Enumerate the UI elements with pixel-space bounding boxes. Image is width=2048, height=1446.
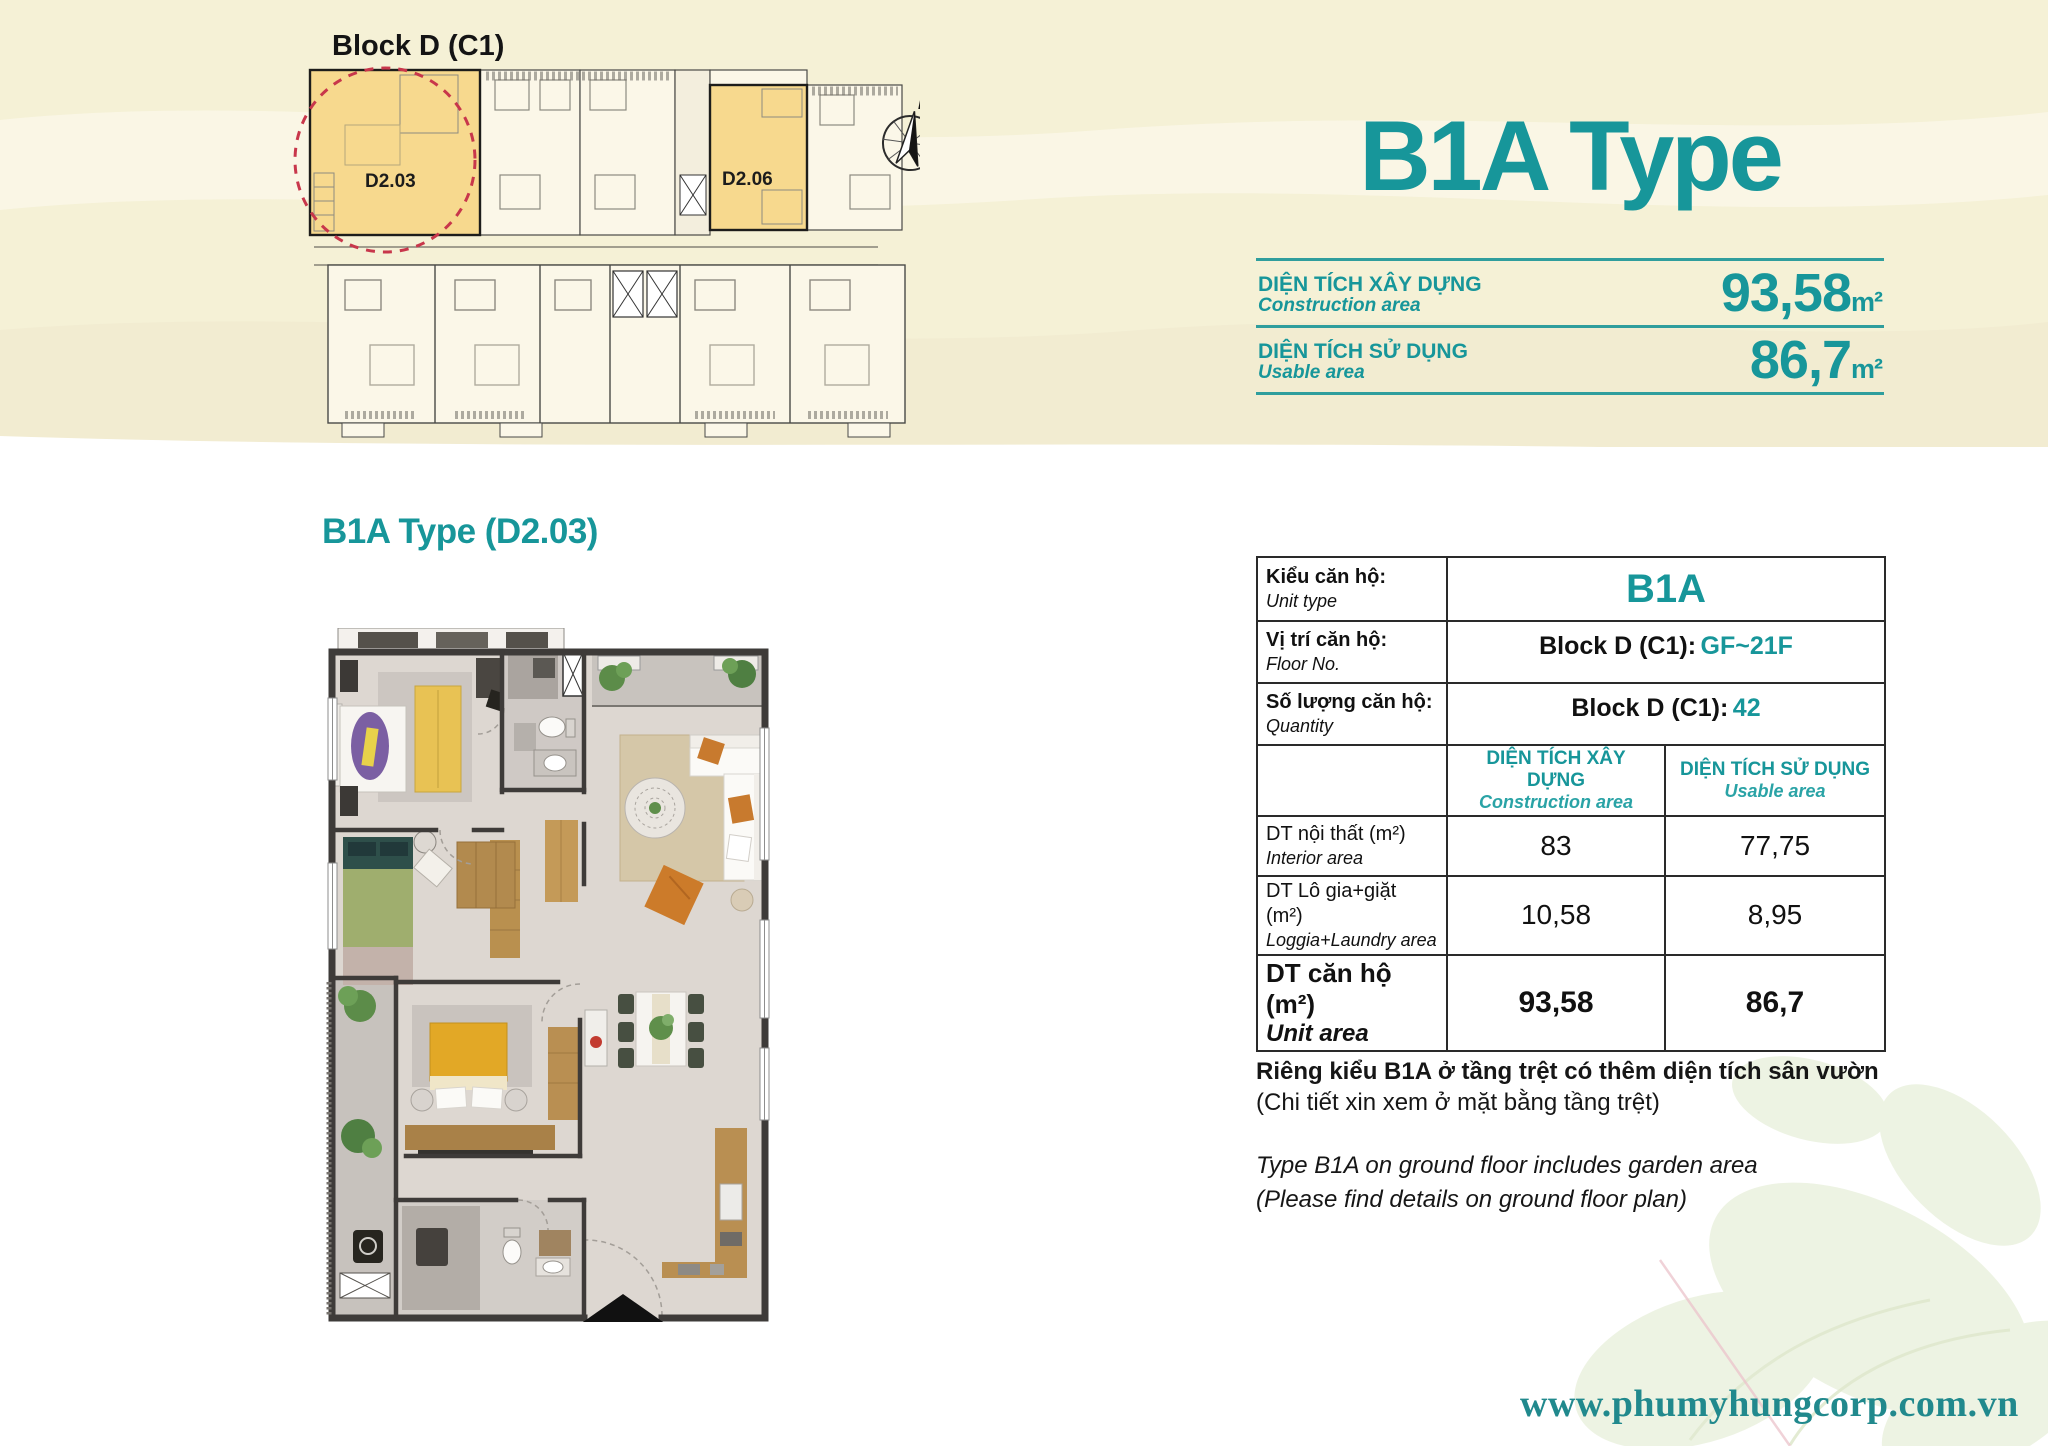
floor-no-value-range: GF~21F (1701, 632, 1793, 660)
area-summary: DIỆN TÍCH XÂY DỰNG Construction area 93,… (1256, 258, 1884, 395)
balcony-top-left (338, 628, 564, 652)
col-header-usable-vi: DIỆN TÍCH SỬ DỤNG (1674, 759, 1876, 781)
page-title: B1A Type (1256, 106, 1884, 205)
quantity-label-vi: Số lượng căn hộ: (1266, 690, 1438, 715)
notes-block: Riêng kiểu B1A ở tầng trệt có thêm diện … (1256, 1056, 1896, 1215)
construction-area-label-vi: DIỆN TÍCH XÂY DỰNG (1258, 274, 1482, 296)
usable-area-row: DIỆN TÍCH SỬ DỤNG Usable area 86,7m² (1256, 325, 1884, 392)
floor-no-label-en: Floor No. (1266, 653, 1438, 676)
quantity-value-count: 42 (1733, 694, 1761, 722)
unit-area-label-vi: DT căn hộ (m²) (1266, 958, 1438, 1020)
note-vi-line2: (Chi tiết xin xem ở mặt bằng tầng trệt) (1256, 1087, 1896, 1118)
quantity-value-block: Block D (C1): (1571, 694, 1728, 722)
loggia-area-label-vi: DT Lô gia+giặt (m²) (1266, 879, 1438, 929)
usable-area-label-vi: DIỆN TÍCH SỬ DỤNG (1258, 341, 1468, 363)
interior-area-label-en: Interior area (1266, 847, 1438, 870)
loggia-area-label-en: Loggia+Laundry area (1266, 929, 1438, 952)
unit-area-usable: 86,7 (1665, 955, 1885, 1051)
table-row: DT căn hộ (m²) Unit area 93,58 86,7 (1257, 955, 1885, 1051)
note-en-line2: (Please find details on ground floor pla… (1256, 1184, 1896, 1215)
interior-area-construction: 83 (1447, 816, 1665, 876)
construction-area-label-en: Construction area (1258, 296, 1482, 316)
construction-area-value: 93,58m² (1721, 262, 1882, 324)
unit-type-label-en: Unit type (1266, 590, 1438, 613)
unit-info-table: Kiểu căn hộ: Unit type B1A Vị trí căn hộ… (1256, 556, 1886, 1052)
apartment-floor-plan (318, 628, 778, 1334)
usable-area-value: 86,7m² (1750, 329, 1882, 391)
note-vi-line1: Riêng kiểu B1A ở tầng trệt có thêm diện … (1256, 1056, 1896, 1087)
interior-area-label-vi: DT nội thất (m²) (1266, 822, 1438, 847)
unit-label-d206: D2.06 (722, 169, 773, 190)
quantity-label-en: Quantity (1266, 715, 1438, 738)
unit-area-construction: 93,58 (1447, 955, 1665, 1051)
compass-north-label: N (918, 96, 920, 113)
table-header-row: DIỆN TÍCH XÂY DỰNG Construction area DIỆ… (1257, 745, 1885, 816)
unit-label-d203: D2.03 (365, 171, 416, 192)
construction-area-row: DIỆN TÍCH XÂY DỰNG Construction area 93,… (1256, 258, 1884, 325)
table-row: Vị trí căn hộ: Floor No. Block D (C1): G… (1257, 621, 1885, 683)
loggia-area-usable: 8,95 (1665, 876, 1885, 955)
website-link[interactable]: www.phumyhungcorp.com.vn (1520, 1382, 1940, 1426)
table-row: Kiểu căn hộ: Unit type B1A (1257, 557, 1885, 621)
unit-d206-shape (710, 85, 807, 230)
bathroom-2 (398, 1200, 582, 1318)
interior-area-usable: 77,75 (1665, 816, 1885, 876)
floor-no-label-vi: Vị trí căn hộ: (1266, 628, 1438, 653)
table-row: Số lượng căn hộ: Quantity Block D (C1): … (1257, 683, 1885, 745)
floor-no-value-block: Block D (C1): (1539, 632, 1696, 660)
note-en-line1: Type B1A on ground floor includes garden… (1256, 1150, 1896, 1181)
floor-plan-title: B1A Type (D2.03) (322, 512, 598, 552)
col-header-construction-en: Construction area (1456, 792, 1656, 813)
balcony-living (592, 652, 762, 706)
block-key-plan: D2.03 D2.06 N (250, 25, 920, 455)
col-header-usable-en: Usable area (1674, 781, 1876, 802)
unit-type-value: B1A (1626, 567, 1706, 611)
table-row: DT Lô gia+giặt (m²) Loggia+Laundry area … (1257, 876, 1885, 955)
brochure-page: Block D (C1) (0, 0, 2048, 1446)
unit-type-label-vi: Kiểu căn hộ: (1266, 565, 1438, 590)
unit-area-label-en: Unit area (1266, 1020, 1438, 1048)
usable-area-label-en: Usable area (1258, 363, 1468, 383)
col-header-construction-vi: DIỆN TÍCH XÂY DỰNG (1456, 748, 1656, 792)
loggia-laundry (332, 978, 396, 1318)
bathroom-1 (504, 652, 584, 790)
master-bedroom (405, 1005, 578, 1158)
unit-d203-shape (310, 70, 480, 235)
table-row: DT nội thất (m²) Interior area 83 77,75 (1257, 816, 1885, 876)
loggia-area-construction: 10,58 (1447, 876, 1665, 955)
